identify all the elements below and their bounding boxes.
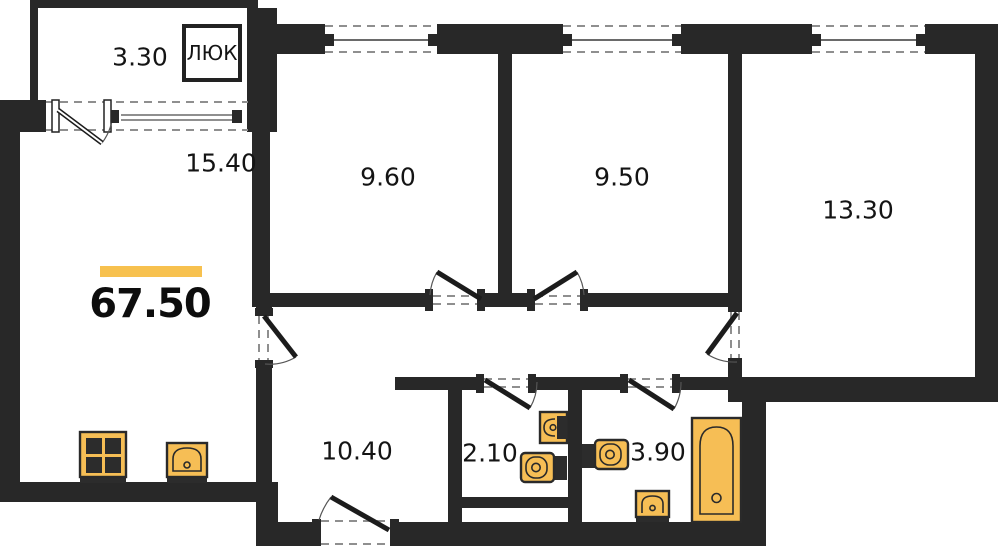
window-stop <box>111 110 119 123</box>
door-jamb <box>672 374 680 393</box>
room-label-wc: 2.10 <box>462 441 518 466</box>
stove-burner <box>105 457 121 473</box>
wall-segment <box>437 24 563 54</box>
window-glass <box>121 115 232 120</box>
stove-burner <box>105 438 121 454</box>
wall-segment <box>588 293 728 307</box>
balcony-door-window <box>46 100 248 143</box>
window-stop <box>325 34 334 46</box>
door-dash <box>535 296 580 304</box>
window-jamb <box>681 24 688 54</box>
sink-body <box>636 491 669 517</box>
room-label-living: 15.40 <box>185 151 257 176</box>
door-leaf <box>437 272 481 299</box>
door-leaf-inner <box>58 110 102 143</box>
wall-segment <box>247 8 277 132</box>
door-arc <box>319 497 331 520</box>
room-label-bedroom1: 9.60 <box>360 165 416 190</box>
wall-segment <box>277 24 325 54</box>
wall-segment <box>742 390 766 546</box>
door-post <box>52 100 59 132</box>
wall-segment <box>395 377 480 390</box>
bathroom-toilet-icon <box>582 440 628 469</box>
door-leaf <box>629 380 674 409</box>
window-jamb <box>925 24 932 54</box>
door-jamb <box>425 289 433 311</box>
room-label-hallway: 10.40 <box>321 439 393 464</box>
window-bedroom2 <box>556 24 688 54</box>
window-stop <box>672 34 681 46</box>
stove-icon <box>80 432 126 483</box>
bathtub-icon <box>692 418 741 522</box>
room-label-balcony: 3.30 <box>112 45 168 70</box>
room-label-bedroom2: 9.50 <box>594 165 650 190</box>
door-jamb <box>312 519 321 546</box>
window-stop <box>232 110 242 123</box>
door-wc <box>476 374 537 408</box>
wall-segment <box>448 390 462 546</box>
wall-segment <box>728 363 742 402</box>
door-entrance <box>312 497 399 546</box>
door-leaf <box>534 272 577 299</box>
total-area-label: 67.50 <box>89 284 211 324</box>
wall-segment <box>975 24 998 402</box>
door-jamb <box>476 374 484 393</box>
window-bedroom3 <box>805 24 932 54</box>
wall-segment <box>20 100 46 132</box>
window-bedroom1 <box>318 24 444 54</box>
wall-segment <box>498 54 512 293</box>
wall-segment <box>681 24 812 54</box>
room-label-bathroom: 3.90 <box>630 440 686 465</box>
door-leaf <box>331 497 389 530</box>
bathroom-sink-icon <box>636 491 669 522</box>
hatch-label: ЛЮК <box>187 43 238 63</box>
floor-plan: 3.30 ЛЮК 15.40 9.60 9.50 13.30 10.40 2.1… <box>0 0 1000 546</box>
stove-burner <box>86 457 102 473</box>
window-stop <box>563 34 572 46</box>
door-bedroom3 <box>707 303 742 367</box>
wall-segment <box>742 377 998 402</box>
kitchen-sink-icon <box>167 443 207 483</box>
window-jamb <box>437 24 444 54</box>
door-leaf <box>707 313 737 354</box>
door-bedroom1 <box>425 272 485 311</box>
wall-segment <box>536 377 624 390</box>
door-living-hallway <box>255 308 296 368</box>
window-jamb <box>805 24 812 54</box>
door-bedroom2 <box>527 272 588 311</box>
door-jamb <box>527 289 535 311</box>
wall-segment <box>256 482 278 546</box>
door-jamb <box>620 374 628 393</box>
sink-base <box>557 416 567 439</box>
door-jamb <box>390 519 399 546</box>
wall-segment <box>0 100 20 502</box>
wc-sink-icon <box>540 412 567 443</box>
total-area-accent-bar <box>100 266 202 277</box>
window-stop <box>812 34 821 46</box>
stove-burner <box>86 438 102 454</box>
wall-segment <box>256 366 272 482</box>
door-dash <box>433 296 477 304</box>
wall-segment <box>680 377 728 390</box>
room-label-bedroom3: 13.30 <box>822 198 894 223</box>
door-jamb <box>528 374 536 393</box>
window-stop <box>916 34 925 46</box>
wall-segment <box>728 54 742 307</box>
door-jamb <box>728 303 742 312</box>
wall-segment <box>0 482 258 502</box>
door-leaf <box>485 380 530 408</box>
wall-segment <box>30 0 38 100</box>
wall-segment <box>485 293 527 307</box>
wall-segment <box>448 497 582 508</box>
wall-segment <box>30 0 258 8</box>
door-bathroom <box>620 374 681 409</box>
window-jamb <box>556 24 563 54</box>
window-stop <box>428 34 437 46</box>
wall-segment <box>270 293 425 307</box>
window-jamb <box>318 24 325 54</box>
door-jamb <box>255 308 273 316</box>
wc-toilet-icon <box>521 453 567 482</box>
